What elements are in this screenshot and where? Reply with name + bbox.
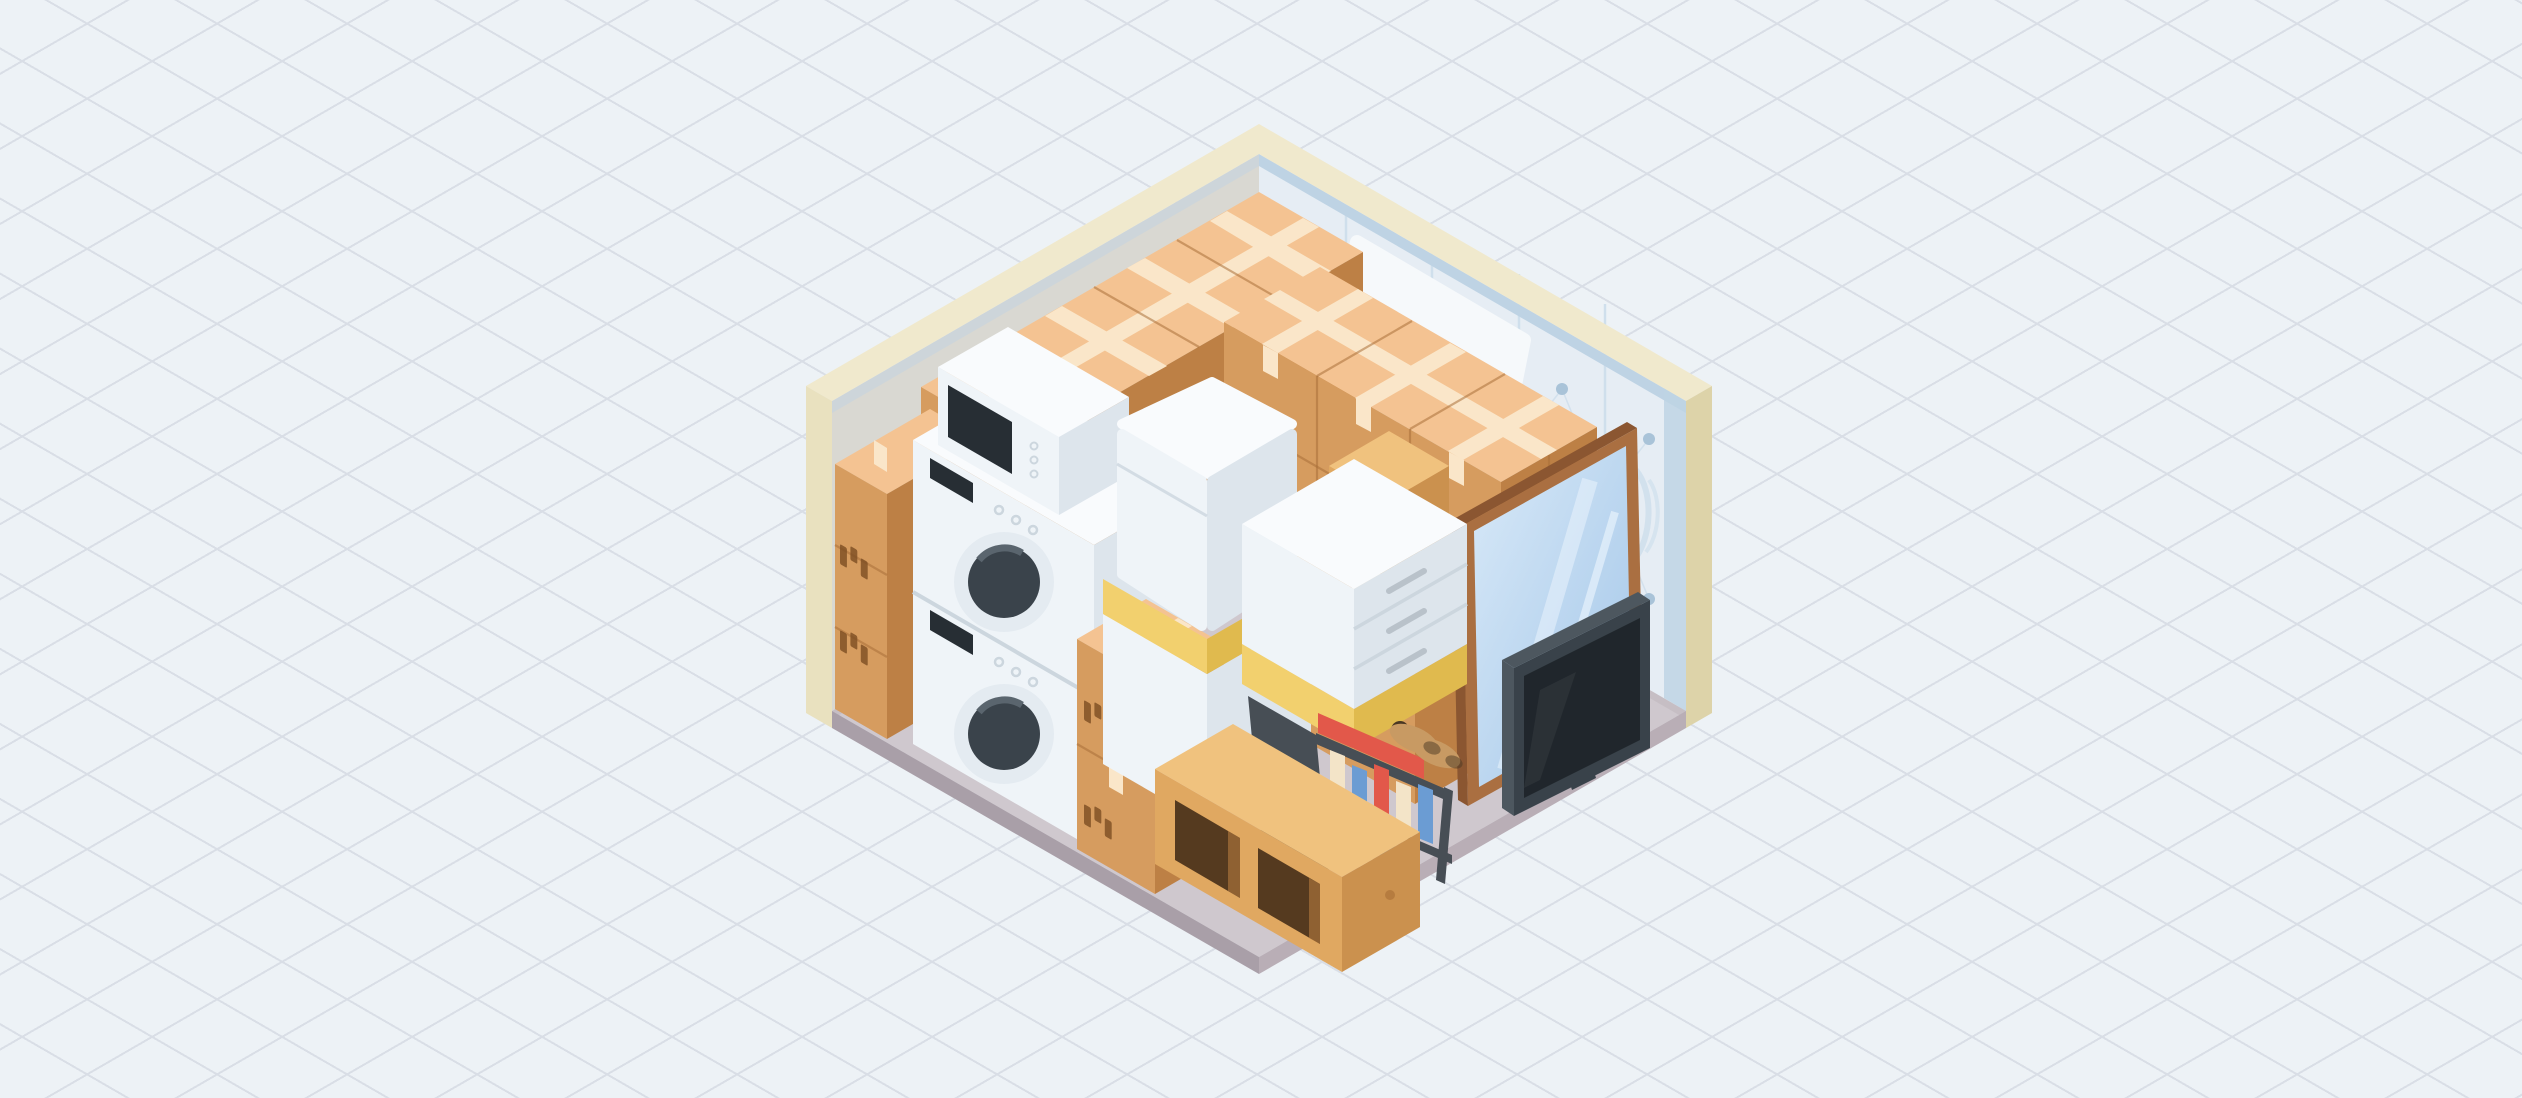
wall-end-right [1686, 386, 1712, 728]
storage-unit-illustration [0, 0, 2522, 1098]
washer-door [954, 684, 1054, 784]
dryer-door [954, 532, 1054, 632]
page-background: { "scene": { "name": "packed-self-storag… [0, 0, 2522, 1098]
wall-end-left [806, 386, 832, 728]
wood-knot [1385, 890, 1395, 900]
